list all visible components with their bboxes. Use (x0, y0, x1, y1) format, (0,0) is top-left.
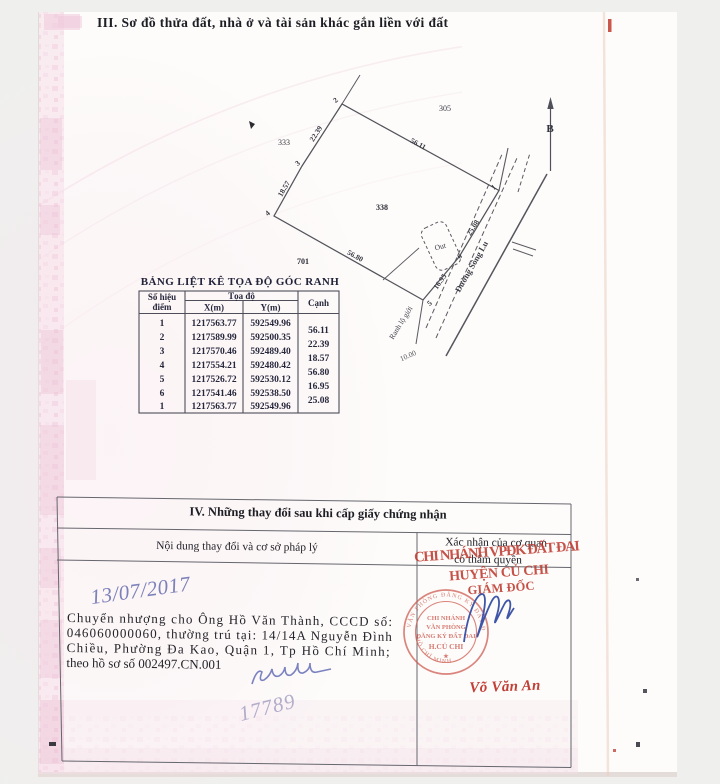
svg-text:1: 1 (160, 319, 165, 329)
svg-text:ĐĂNG KÝ ĐẤT ĐAI: ĐĂNG KÝ ĐẤT ĐAI (416, 632, 476, 640)
svg-text:1217554.21: 1217554.21 (191, 361, 236, 371)
svg-text:Y(m): Y(m) (261, 303, 281, 313)
svg-text:592549.96: 592549.96 (250, 402, 291, 412)
svg-text:X(m): X(m) (204, 303, 224, 313)
svg-text:305: 305 (439, 104, 451, 113)
svg-text:56.80: 56.80 (308, 368, 330, 378)
svg-text:BẢNG LIỆT KÊ TỌA ĐỘ GÓC RANH: BẢNG LIỆT KÊ TỌA ĐỘ GÓC RANH (141, 275, 339, 288)
svg-text:H.CỦ CHI: H.CỦ CHI (429, 641, 464, 651)
svg-text:592500.35: 592500.35 (250, 333, 291, 343)
svg-text:22.39: 22.39 (308, 340, 330, 350)
svg-text:1217563.77: 1217563.77 (191, 319, 236, 329)
svg-text:1: 1 (160, 402, 165, 412)
svg-text:★: ★ (443, 653, 449, 660)
svg-text:1217563.77: 1217563.77 (191, 402, 236, 412)
svg-text:592530.12: 592530.12 (250, 375, 291, 385)
svg-text:Tọa độ: Tọa độ (228, 291, 255, 301)
svg-text:1217526.72: 1217526.72 (191, 375, 236, 385)
svg-text:Nội dung thay đổi và cơ sở phá: Nội dung thay đổi và cơ sở pháp lý (156, 539, 318, 554)
svg-text:2: 2 (160, 333, 165, 343)
svg-text:701: 701 (297, 257, 309, 266)
svg-text:592538.50: 592538.50 (250, 389, 291, 399)
svg-text:B: B (546, 123, 554, 135)
svg-text:VĂN PHÒNG: VĂN PHÒNG (426, 623, 466, 631)
svg-text:Số hiệu: Số hiệu (148, 292, 176, 302)
svg-text:theo hồ sơ số 002497.CN.001: theo hồ sơ số 002497.CN.001 (66, 655, 221, 672)
svg-text:592480.42: 592480.42 (250, 361, 291, 371)
svg-text:1217589.99: 1217589.99 (191, 333, 236, 343)
svg-text:56.11: 56.11 (308, 326, 329, 336)
svg-text:Cạnh: Cạnh (308, 298, 329, 308)
svg-text:18.57: 18.57 (308, 354, 330, 364)
svg-text:5: 5 (160, 375, 165, 385)
svg-text:3: 3 (160, 347, 165, 357)
svg-text:333: 333 (278, 138, 290, 147)
svg-text:25.08: 25.08 (308, 396, 330, 406)
svg-text:592489.40: 592489.40 (250, 347, 291, 357)
svg-text:592549.96: 592549.96 (250, 319, 291, 329)
svg-text:điểm: điểm (153, 302, 173, 312)
svg-text:16.95: 16.95 (308, 382, 330, 392)
svg-text:4: 4 (160, 361, 165, 371)
svg-text:Võ Văn An: Võ Văn An (469, 678, 541, 696)
svg-text:1217541.46: 1217541.46 (191, 389, 236, 399)
svg-text:338: 338 (376, 203, 388, 212)
svg-text:CHI NHÁNH: CHI NHÁNH (427, 614, 465, 622)
svg-text:III. Sơ đồ thửa đất, nhà ở và: III. Sơ đồ thửa đất, nhà ở và tài sản kh… (97, 15, 449, 30)
svg-text:1217570.46: 1217570.46 (191, 347, 236, 357)
svg-text:6: 6 (160, 389, 165, 399)
